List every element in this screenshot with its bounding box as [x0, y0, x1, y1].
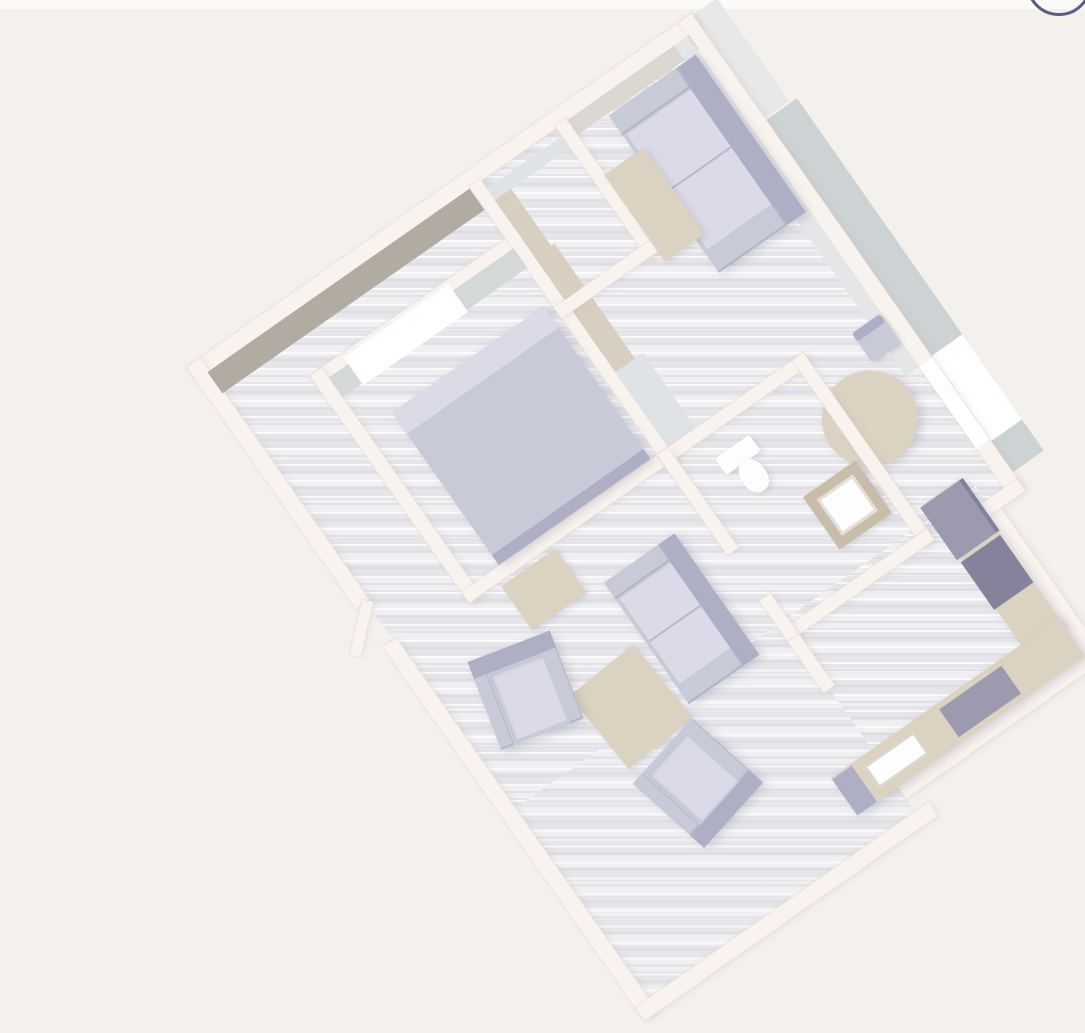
- apartment-3d-model: [175, 0, 1085, 1033]
- floor-plan-canvas: [0, 0, 1085, 1033]
- canvas-top-strip: [0, 0, 1085, 9]
- vanity-basin: [817, 474, 878, 535]
- entrance-door-leaf: [350, 600, 373, 657]
